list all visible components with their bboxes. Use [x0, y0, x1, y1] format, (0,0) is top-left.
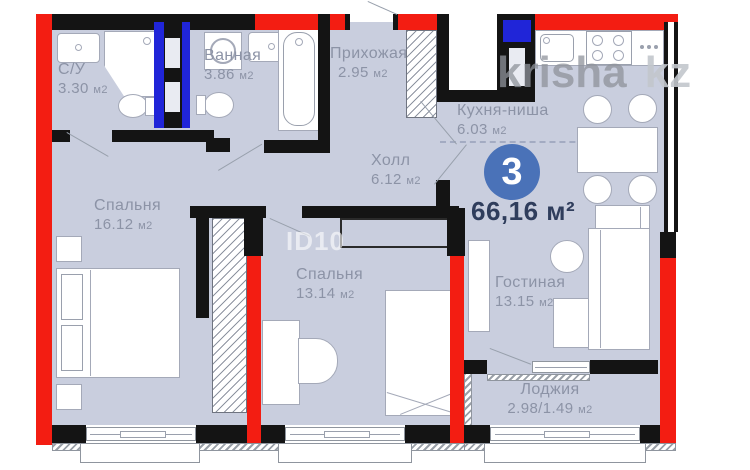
door-swing	[368, 1, 398, 15]
room-name: Спальня	[296, 265, 363, 285]
floor-plan: С/У 3.30 м2 Ванная 3.86 м2 Прихожая 2.95…	[0, 0, 750, 470]
loggia-side-rail	[464, 373, 472, 427]
vent-shaft-blue	[503, 20, 531, 42]
wall-hallway-right	[437, 14, 449, 102]
nightstand	[56, 236, 82, 262]
toilet-bowl-2	[204, 92, 234, 118]
loggia-window	[490, 427, 640, 441]
room-area-value: 3.86	[204, 66, 235, 83]
window-sill-outer	[278, 443, 412, 463]
pillow	[61, 274, 83, 320]
room-label-bath: Ванная 3.86 м2	[204, 46, 261, 85]
kitchen-faucet	[543, 37, 550, 44]
room-area-value: 6.03	[457, 121, 488, 138]
room-area-value: 3.30	[58, 80, 89, 97]
wall-inner	[112, 130, 214, 142]
bathtub-inner	[283, 32, 315, 126]
burner	[613, 35, 624, 46]
site-watermark: krisha kz	[497, 48, 691, 98]
wall-right-red	[660, 258, 676, 443]
chair	[583, 175, 612, 204]
bathtub-drain	[295, 38, 303, 46]
sink-faucet-dot	[75, 44, 82, 51]
room-label-wc: С/У 3.30 м2	[58, 60, 108, 99]
wall-bottom	[464, 425, 490, 443]
wall-loggia	[464, 360, 487, 374]
desk-chair	[298, 338, 338, 384]
room-area-unit: м2	[492, 125, 506, 137]
room-area-unit: м2	[406, 175, 420, 187]
watermark-brand: krisha	[497, 48, 627, 98]
shaft-blue-right	[182, 22, 190, 128]
total-area: 66,16 м²	[471, 196, 575, 227]
wall-left-red	[36, 14, 52, 445]
room-name: Холл	[371, 151, 421, 171]
window	[86, 427, 196, 441]
room-label-loggia: Лоджия 2.98/1.49 м2	[490, 380, 610, 419]
room-area-unit: м2	[578, 404, 592, 416]
room-name: Гостиная	[495, 273, 565, 293]
shower-drain	[143, 37, 151, 45]
room-area-value: 16.12	[94, 216, 134, 233]
room-area-value: 2.98/1.49	[507, 400, 573, 417]
chair	[628, 175, 657, 204]
pillow	[61, 325, 83, 371]
wall-bottom	[261, 425, 285, 443]
wall-bottom	[640, 425, 660, 443]
room-area-unit: м2	[138, 220, 152, 232]
wall-bottom	[52, 425, 86, 443]
wall-hall-bottom	[302, 206, 320, 218]
room-area-value: 6.12	[371, 171, 402, 188]
room-count: 3	[501, 151, 522, 194]
room-label-hall: Холл 6.12 м2	[371, 151, 421, 190]
shaft-duct	[165, 82, 180, 112]
room-area-unit: м2	[539, 297, 553, 309]
room-label-bedroom1: Спальня 16.12 м2	[94, 196, 161, 235]
listing-id-watermark: ID10	[286, 226, 345, 257]
plumbing-shaft	[154, 22, 190, 128]
room-name: Прихожая	[330, 44, 407, 64]
room-name: Спальня	[94, 196, 161, 216]
room-count-badge: 3	[484, 144, 540, 200]
shaft-blue-left	[154, 22, 164, 128]
wall-pillar-red	[450, 256, 464, 443]
room-area-value: 13.15	[495, 293, 535, 310]
chair	[628, 94, 657, 123]
door-jamb	[345, 14, 350, 30]
window-sill-outer	[484, 443, 646, 463]
hallway-closet	[406, 30, 437, 118]
dining-table	[577, 127, 658, 173]
wall-right-black	[660, 232, 676, 258]
wall-bedroom1-right	[196, 206, 209, 318]
blanket-line	[90, 270, 91, 376]
single-bed	[385, 290, 457, 416]
wall-bottom	[196, 425, 247, 443]
wall-bottom	[405, 425, 450, 443]
wall-inner	[206, 138, 230, 152]
bedroom2-wardrobe	[340, 218, 458, 248]
toilet-bowl	[118, 94, 148, 118]
chair	[583, 95, 612, 124]
room-name: Кухня-ниша	[457, 101, 549, 121]
window-sill-outer	[80, 443, 200, 463]
sofa-back-line	[600, 230, 601, 348]
side-table	[550, 240, 584, 273]
room-area-unit: м2	[340, 289, 354, 301]
bedroom1-closet	[212, 218, 247, 413]
window	[285, 427, 405, 441]
room-name: С/У	[58, 60, 108, 80]
room-label-living: Гостиная 13.15 м2	[495, 273, 565, 312]
nightstand	[56, 384, 82, 410]
room-area-unit: м2	[239, 70, 253, 82]
burner	[592, 35, 603, 46]
room-area-value: 2.95	[338, 64, 369, 81]
watermark-tld: kz	[645, 48, 691, 98]
loggia-door-window	[532, 361, 590, 373]
toilet-tank-2	[196, 95, 206, 115]
desk	[262, 320, 300, 405]
wall-pillar-red	[247, 256, 261, 443]
wall-pillar-cap	[244, 214, 263, 256]
wall-top-red	[255, 14, 345, 30]
exterior-notch	[449, 14, 497, 90]
wall-loggia	[590, 360, 658, 374]
wall-hall-stub	[436, 180, 450, 218]
room-label-hallway: Прихожая 2.95 м2	[330, 44, 407, 83]
sofa-main	[588, 228, 650, 350]
shaft-duct	[165, 38, 180, 68]
room-label-bedroom2: Спальня 13.14 м2	[296, 265, 363, 304]
bath-sink-faucet	[268, 43, 275, 50]
tv-console	[468, 240, 490, 332]
room-name: Лоджия	[490, 380, 610, 400]
wall-bath-hall	[318, 14, 330, 153]
room-area-unit: м2	[93, 84, 107, 96]
room-area-unit: м2	[373, 68, 387, 80]
room-name: Ванная	[204, 46, 261, 66]
room-area-value: 13.14	[296, 285, 336, 302]
room-label-kitchen: Кухня-ниша 6.03 м2	[457, 101, 549, 140]
